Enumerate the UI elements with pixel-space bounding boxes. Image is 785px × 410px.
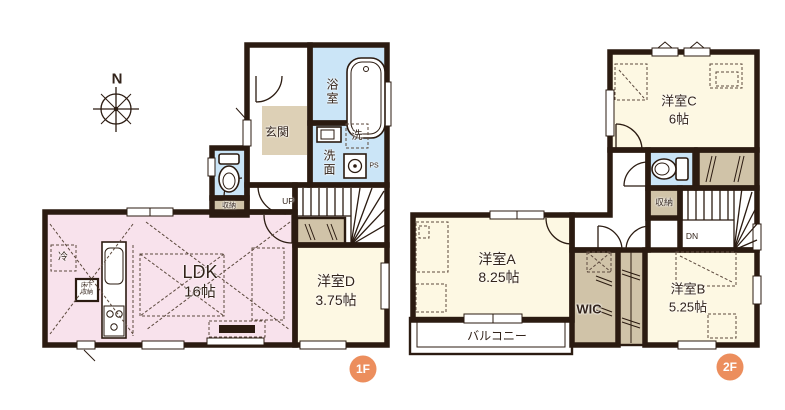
room-d-name: 洋室D bbox=[317, 274, 355, 288]
toilet-icon bbox=[219, 154, 239, 192]
stairs-up-label: UP bbox=[282, 197, 294, 206]
room-b-name: 洋室B bbox=[671, 283, 706, 296]
floor-plan-page: N 玄関 浴室 洗面 洗 PS UP 収納 LDK 16帖 洋室D 3.75帖 … bbox=[0, 0, 785, 410]
vanity-icon bbox=[317, 127, 341, 142]
ps-label: PS bbox=[369, 163, 378, 170]
bathroom-label: 浴室 bbox=[326, 78, 338, 106]
fridge-label: 冷 bbox=[58, 253, 68, 263]
room-a-area: 8.25帖 bbox=[478, 270, 519, 284]
room-yoshitsu-b bbox=[645, 250, 757, 345]
genkan-label: 玄関 bbox=[265, 126, 289, 138]
room-c-name: 洋室C bbox=[661, 95, 696, 108]
window bbox=[142, 341, 184, 349]
compass-icon bbox=[93, 87, 139, 132]
washer-label: 洗 bbox=[352, 131, 363, 142]
window bbox=[490, 211, 544, 219]
vent-mark bbox=[690, 42, 704, 48]
balcony-slider-window bbox=[464, 314, 522, 323]
window bbox=[652, 48, 678, 56]
compass-north-label: N bbox=[112, 72, 123, 87]
room-yoshitsu-a bbox=[413, 215, 572, 320]
window bbox=[684, 48, 710, 56]
toilet-storage-label: 収納 bbox=[222, 203, 236, 210]
closet-under-stairs bbox=[297, 218, 345, 244]
room-a-name: 洋室A bbox=[478, 252, 515, 266]
ldk-name: LDK bbox=[182, 263, 217, 281]
washing-machine-pan bbox=[344, 154, 366, 178]
floor2-badge-label: 2F bbox=[723, 361, 737, 373]
window bbox=[678, 341, 716, 349]
closet-2f bbox=[697, 150, 757, 188]
stairs-dn-label: DN bbox=[686, 232, 698, 241]
window bbox=[127, 208, 173, 216]
washroom-label: 洗面 bbox=[323, 149, 335, 177]
toilet-icon bbox=[652, 158, 688, 180]
room-d-area: 3.75帖 bbox=[315, 293, 356, 307]
vent-mark bbox=[658, 42, 672, 48]
floor1-badge-label: 1F bbox=[356, 363, 370, 375]
window bbox=[208, 158, 215, 176]
underfloor-storage-label: 床下収納 bbox=[80, 283, 94, 297]
window bbox=[753, 276, 761, 304]
window bbox=[381, 263, 389, 309]
room-c-area: 6帖 bbox=[669, 113, 689, 126]
balcony-label: バルコニー bbox=[467, 330, 527, 342]
window bbox=[207, 338, 264, 345]
door-gap-kitchen bbox=[77, 341, 95, 361]
wic-label: WIC bbox=[576, 303, 601, 316]
window bbox=[606, 90, 614, 136]
storage-2f-label: 収納 bbox=[655, 199, 673, 208]
room-b-area: 5.25帖 bbox=[669, 301, 707, 314]
bathtub-icon bbox=[347, 58, 385, 138]
window bbox=[300, 341, 346, 349]
ldk-area: 16帖 bbox=[184, 285, 216, 300]
